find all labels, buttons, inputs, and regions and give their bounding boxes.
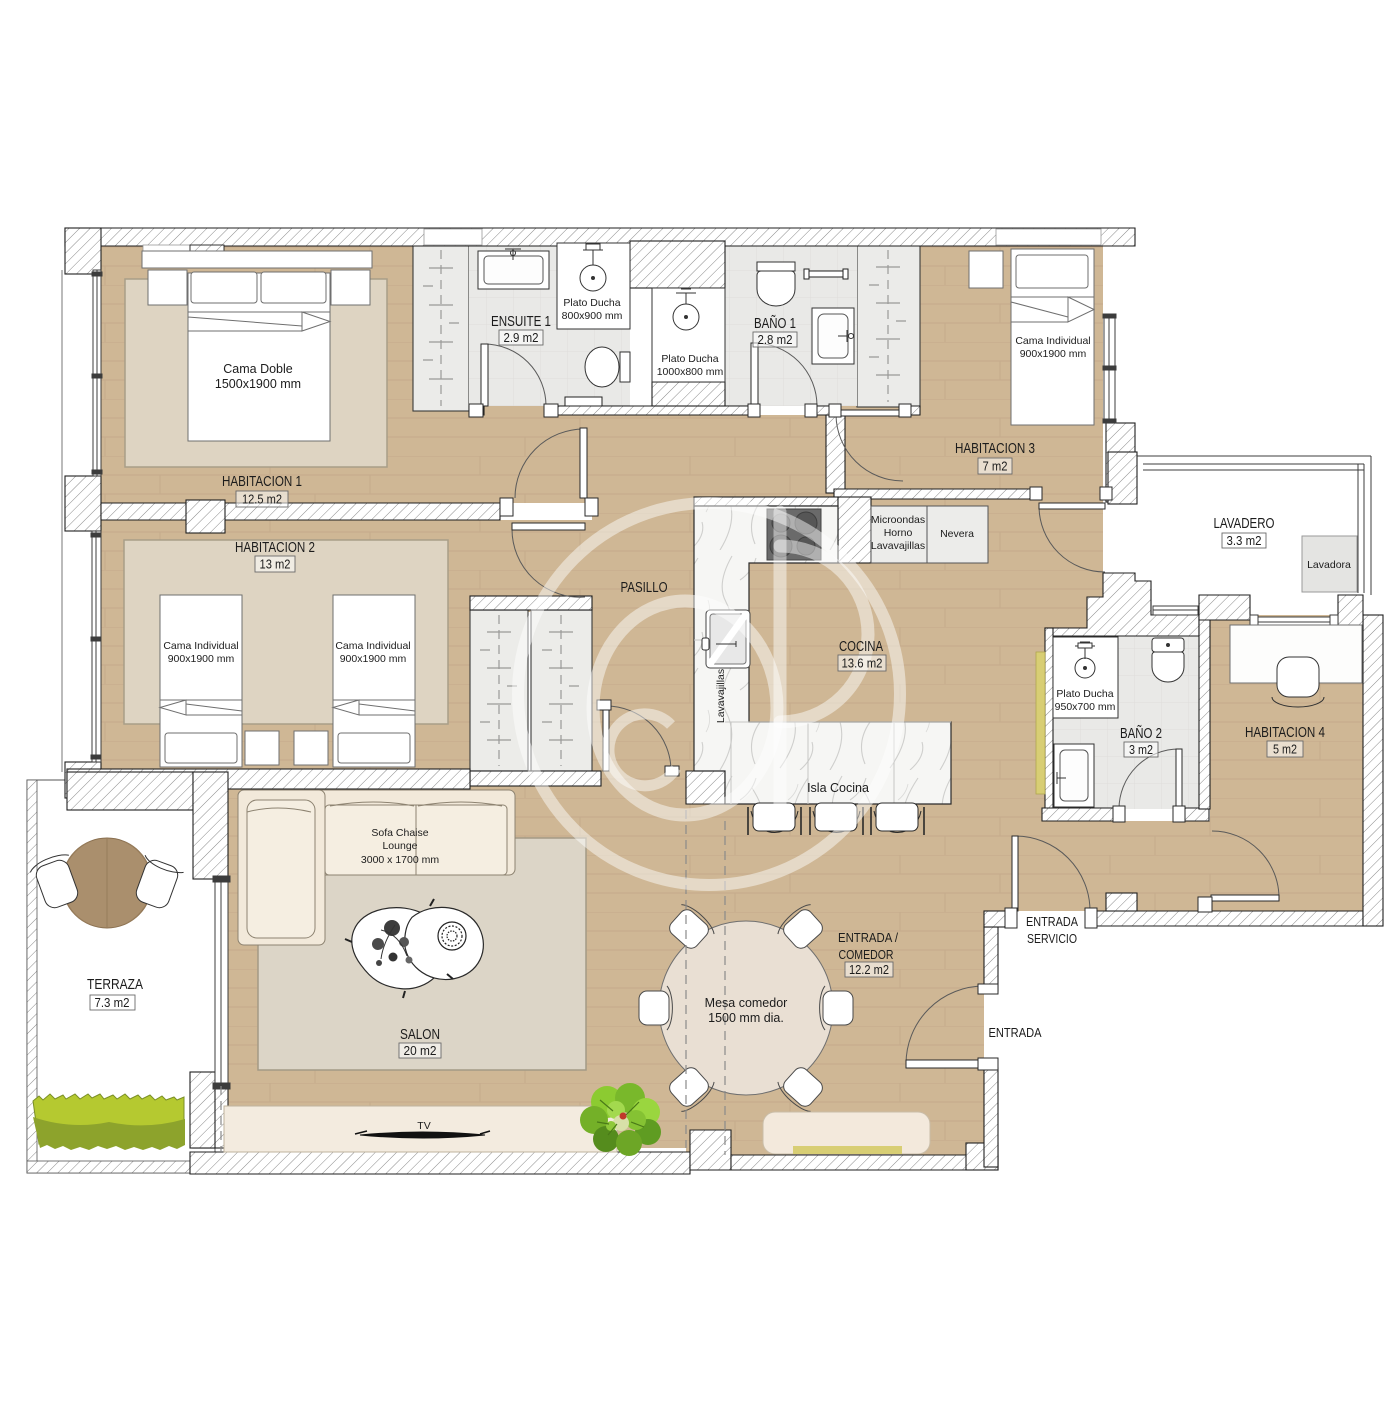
svg-text:Cama Individual: Cama Individual — [1015, 335, 1090, 347]
svg-text:900x1900 mm: 900x1900 mm — [168, 653, 235, 665]
svg-text:ENTRADA: ENTRADA — [989, 1026, 1043, 1040]
svg-text:Sofa Chaise: Sofa Chaise — [371, 827, 428, 839]
svg-text:Cama Individual: Cama Individual — [163, 640, 238, 652]
svg-text:Microondas: Microondas — [871, 514, 925, 526]
svg-text:12.2 m2: 12.2 m2 — [849, 963, 889, 977]
svg-text:Plato Ducha: Plato Ducha — [563, 297, 620, 309]
svg-text:TERRAZA: TERRAZA — [87, 977, 143, 993]
svg-text:900x1900 mm: 900x1900 mm — [1020, 348, 1087, 360]
svg-text:HABITACION 1: HABITACION 1 — [222, 474, 302, 490]
svg-text:TV: TV — [417, 1120, 430, 1132]
svg-text:20 m2: 20 m2 — [404, 1044, 437, 1058]
svg-text:7.3 m2: 7.3 m2 — [95, 996, 130, 1010]
svg-text:950x700 mm: 950x700 mm — [1055, 701, 1116, 713]
svg-text:13.6 m2: 13.6 m2 — [842, 657, 883, 671]
svg-text:HABITACION 2: HABITACION 2 — [235, 540, 315, 556]
svg-text:1500x1900 mm: 1500x1900 mm — [215, 377, 301, 391]
svg-text:ENTRADA /: ENTRADA / — [838, 931, 898, 945]
svg-text:Lavavajillas: Lavavajillas — [871, 540, 925, 552]
svg-text:3000 x 1700 mm: 3000 x 1700 mm — [361, 854, 439, 866]
svg-text:Plato Ducha: Plato Ducha — [1056, 688, 1113, 700]
svg-text:13 m2: 13 m2 — [260, 558, 291, 572]
svg-text:5 m2: 5 m2 — [1273, 743, 1297, 757]
svg-text:Lavadora: Lavadora — [1307, 559, 1351, 571]
svg-text:1000x800 mm: 1000x800 mm — [657, 366, 724, 378]
svg-text:LAVADERO: LAVADERO — [1214, 516, 1275, 532]
svg-text:Plato Ducha: Plato Ducha — [661, 353, 718, 365]
svg-text:Cama Individual: Cama Individual — [335, 640, 410, 652]
svg-text:COCINA: COCINA — [839, 639, 883, 655]
svg-text:HABITACION 4: HABITACION 4 — [1245, 725, 1325, 741]
svg-text:SALON: SALON — [400, 1027, 440, 1043]
svg-text:900x1900 mm: 900x1900 mm — [340, 653, 407, 665]
svg-text:800x900 mm: 800x900 mm — [562, 310, 623, 322]
svg-text:BAÑO 1: BAÑO 1 — [754, 315, 796, 332]
svg-text:7 m2: 7 m2 — [983, 460, 1008, 474]
svg-text:3.3 m2: 3.3 m2 — [1227, 534, 1262, 548]
svg-text:3 m2: 3 m2 — [1129, 743, 1153, 757]
svg-text:12.5 m2: 12.5 m2 — [242, 493, 282, 507]
svg-text:2.9 m2: 2.9 m2 — [504, 331, 539, 345]
svg-text:Lavavajillas: Lavavajillas — [715, 669, 727, 723]
svg-text:Cama Doble: Cama Doble — [223, 362, 293, 376]
svg-text:SERVICIO: SERVICIO — [1027, 932, 1077, 946]
svg-text:PASILLO: PASILLO — [621, 580, 668, 596]
svg-text:2.8 m2: 2.8 m2 — [758, 333, 793, 347]
svg-text:ENSUITE 1: ENSUITE 1 — [491, 314, 551, 330]
svg-text:1500 mm dia.: 1500 mm dia. — [708, 1011, 784, 1025]
svg-text:BAÑO 2: BAÑO 2 — [1120, 725, 1162, 742]
svg-text:COMEDOR: COMEDOR — [839, 948, 894, 962]
svg-text:Nevera: Nevera — [940, 528, 974, 540]
svg-text:HABITACION 3: HABITACION 3 — [955, 441, 1035, 457]
svg-text:Isla Cocina: Isla Cocina — [807, 781, 869, 795]
svg-text:ENTRADA: ENTRADA — [1026, 915, 1079, 929]
svg-text:Horno: Horno — [884, 527, 913, 539]
svg-text:Lounge: Lounge — [382, 840, 417, 852]
svg-text:Mesa comedor: Mesa comedor — [705, 996, 788, 1010]
